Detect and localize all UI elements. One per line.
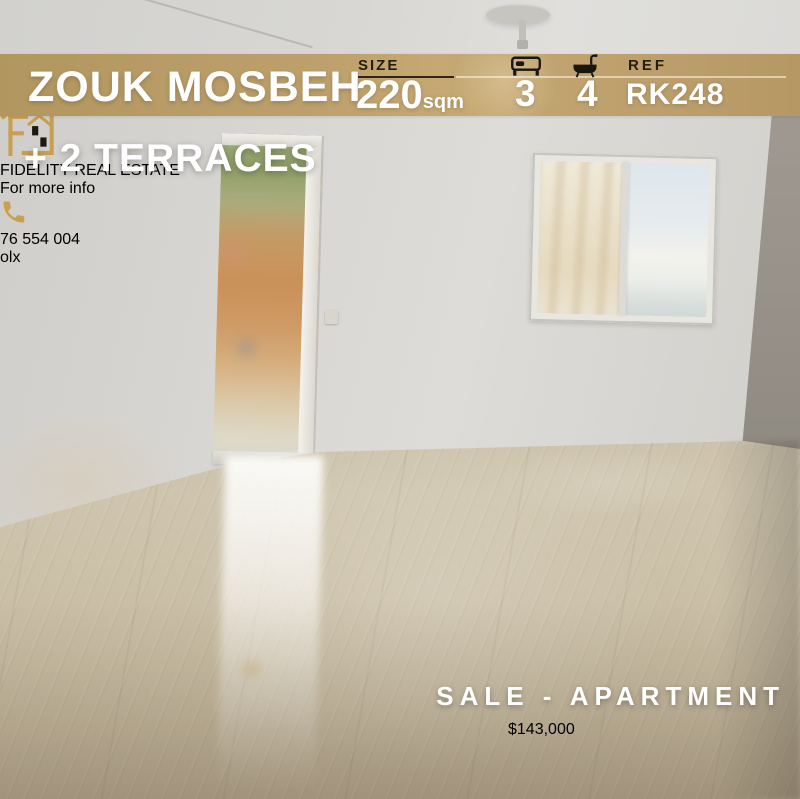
header-separator-line: [456, 76, 786, 78]
window-right-pane: [625, 163, 710, 317]
bedroom-count: 3: [515, 73, 536, 115]
ceiling-lamp: [486, 5, 550, 25]
ref-label: REF: [628, 57, 667, 74]
extra-feature-text: + 2 TERRACES: [24, 137, 317, 181]
light-switch: [325, 310, 338, 324]
real-estate-listing-image: ZOUK MOSBEH SIZE 220sqm 3: [0, 0, 800, 799]
bathroom-count: 4: [577, 73, 598, 115]
size-unit: sqm: [423, 91, 464, 113]
price-band: $143,000: [508, 721, 782, 780]
location-title: ZOUK MOSBEH: [28, 63, 362, 112]
ref-value: RK248: [626, 78, 724, 112]
size-value: 220sqm: [356, 73, 464, 118]
header-band: ZOUK MOSBEH SIZE 220sqm 3: [0, 54, 800, 116]
ceiling: [0, 0, 800, 56]
window: [529, 153, 718, 325]
size-label: SIZE: [358, 57, 399, 74]
balcony-door: [213, 133, 322, 466]
ceiling-lamp-socket: [517, 40, 528, 49]
listing-type-label: SALE - APARTMENT: [436, 681, 785, 712]
size-number: 220: [356, 73, 423, 117]
price-value: $143,000: [508, 721, 575, 738]
window-left-pane: [537, 161, 622, 315]
